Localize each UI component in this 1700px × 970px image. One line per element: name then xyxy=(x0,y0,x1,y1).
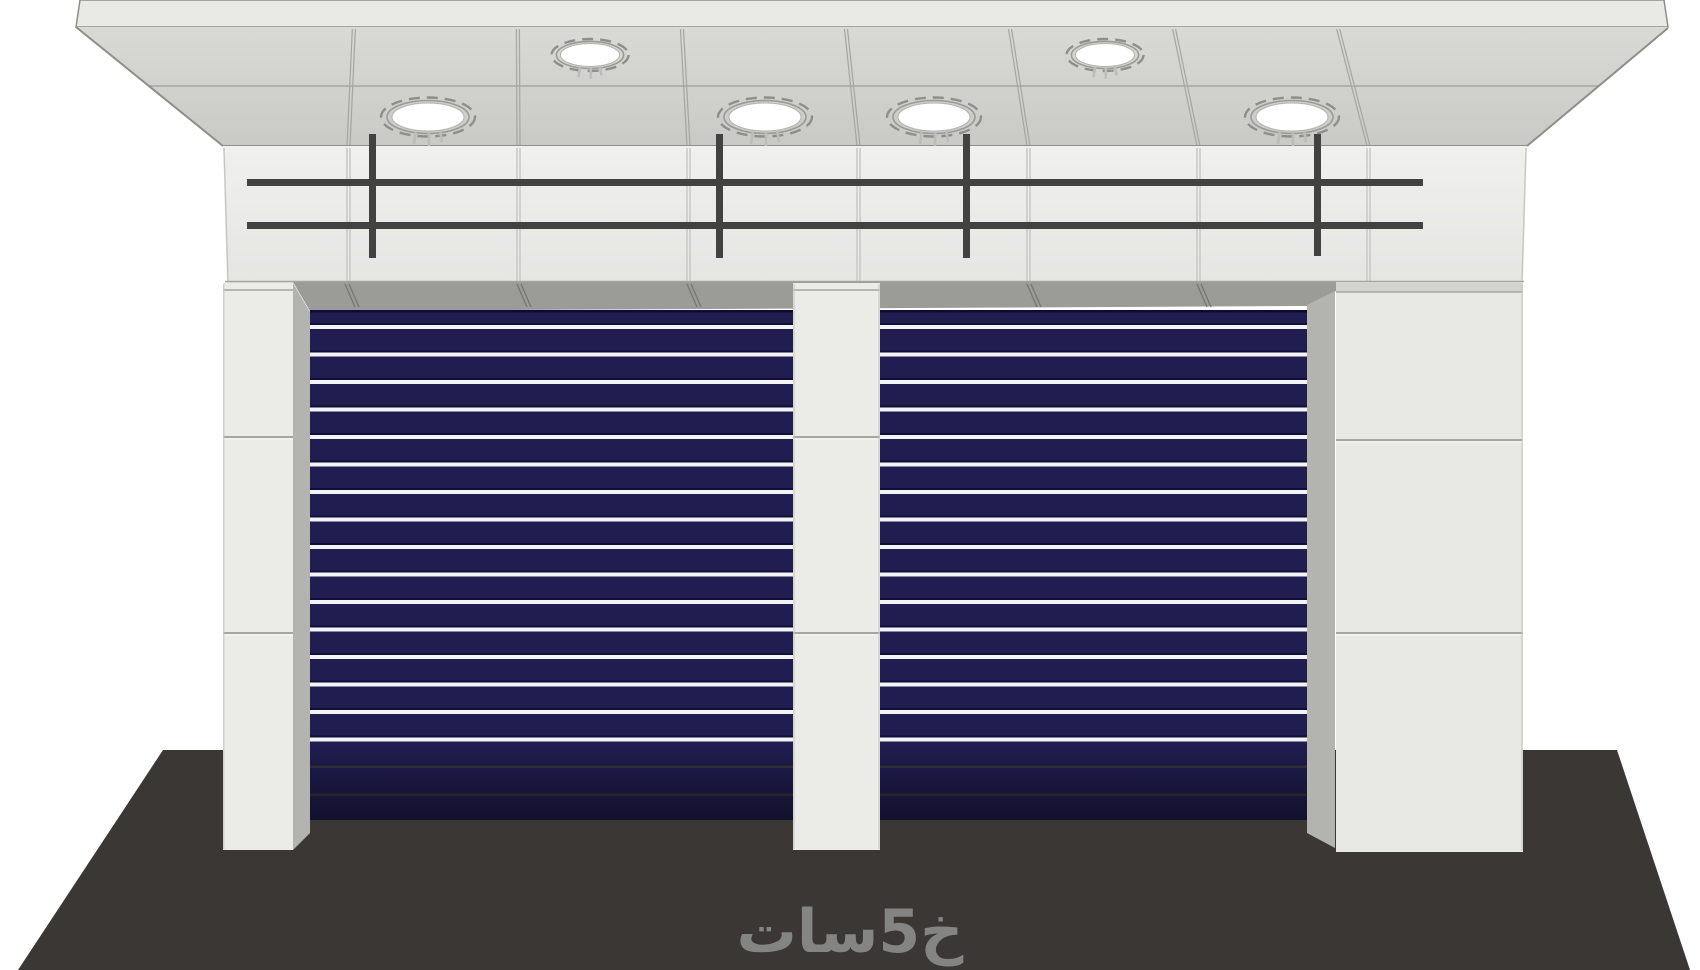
slat-gap-highlight xyxy=(310,738,793,742)
light-tick xyxy=(1094,66,1096,77)
slat-gap-highlight xyxy=(310,380,793,384)
canopy-top-strip xyxy=(76,0,1668,27)
railing-bar-bottom xyxy=(247,222,1423,229)
roller-shutter-right xyxy=(880,310,1307,820)
slat-gap-highlight xyxy=(310,655,793,659)
slat-gap-shadow xyxy=(880,626,1307,628)
slat-gap-shadow xyxy=(880,681,1307,683)
shutter-top-rail xyxy=(310,310,793,313)
light-lens xyxy=(1075,44,1134,67)
slat-gap-highlight xyxy=(880,353,1307,357)
slat-gap-shadow xyxy=(310,736,793,738)
fascia-band xyxy=(223,146,1527,283)
slat-gap-highlight xyxy=(310,353,793,357)
slat-gap-highlight xyxy=(310,463,793,467)
pillar-left-side-face xyxy=(293,283,310,850)
slat-gap-shadow xyxy=(880,433,1307,435)
slat-gap-highlight xyxy=(880,325,1307,329)
pillar-left xyxy=(223,283,310,850)
light-tick xyxy=(600,66,602,76)
shutter-bottom-shadow xyxy=(310,742,793,820)
canopy xyxy=(76,0,1668,146)
light-lens xyxy=(729,103,801,131)
slat-gap-shadow xyxy=(310,681,793,683)
slat-gap-shadow xyxy=(880,406,1307,408)
slat-gap-shadow xyxy=(310,516,793,518)
slat-gap-shadow xyxy=(310,433,793,435)
railing-post xyxy=(1314,134,1321,256)
slat-gap-shadow xyxy=(310,351,793,353)
railing-post xyxy=(369,134,376,258)
pillar-center-face xyxy=(793,283,880,850)
slat-gap-shadow xyxy=(310,406,793,408)
slat-gap-shadow xyxy=(310,708,793,710)
slat-gap-shadow xyxy=(310,653,793,655)
slat-gap-shadow xyxy=(880,653,1307,655)
slat-gap-highlight xyxy=(310,573,793,577)
fascia-panel xyxy=(223,146,1527,283)
slat-gap-highlight xyxy=(880,408,1307,412)
slat-gap-shadow xyxy=(880,351,1307,353)
slat-gap-highlight xyxy=(310,408,793,412)
light-tick xyxy=(579,66,581,77)
slat-gap-shadow xyxy=(880,598,1307,600)
slat-gap-highlight xyxy=(310,600,793,604)
pillar-center xyxy=(793,283,880,850)
slat-gap-highlight xyxy=(310,490,793,494)
roller-shutter-left xyxy=(310,310,793,820)
slat-gap-highlight xyxy=(880,683,1307,687)
slat-gap-shadow xyxy=(880,516,1307,518)
shutter-top-rail xyxy=(880,310,1307,313)
slat-gap-shadow xyxy=(880,736,1307,738)
slat-gap-shadow xyxy=(880,708,1307,710)
slat-gap-shadow xyxy=(310,543,793,545)
slat-gap-highlight xyxy=(880,573,1307,577)
slat-gap-highlight xyxy=(880,738,1307,742)
slat-gap-shadow xyxy=(880,543,1307,545)
light-lens xyxy=(392,103,464,131)
slat-gap-shadow xyxy=(310,378,793,380)
wall-cap-band xyxy=(1336,283,1523,292)
slat-gap-highlight xyxy=(880,380,1307,384)
slat-gap-shadow xyxy=(310,323,793,325)
slat-gap-highlight xyxy=(880,518,1307,522)
slat-gap-highlight xyxy=(880,435,1307,439)
slat-gap-shadow xyxy=(880,461,1307,463)
wall-right-side-face xyxy=(1307,291,1335,848)
side-wall-right xyxy=(1307,283,1523,852)
slat-gap-highlight xyxy=(880,655,1307,659)
illustration-canvas: خ5سات xyxy=(0,0,1700,970)
slat-gap-highlight xyxy=(310,710,793,714)
railing-post xyxy=(963,134,970,258)
slat-gap-highlight xyxy=(310,628,793,632)
slat-gap-highlight xyxy=(880,463,1307,467)
slat-gap-shadow xyxy=(310,598,793,600)
slat-gap-highlight xyxy=(880,490,1307,494)
slat-gap-highlight xyxy=(310,518,793,522)
railing-bar-top xyxy=(247,179,1423,186)
slat-gap-highlight xyxy=(880,628,1307,632)
slat-gap-shadow xyxy=(310,461,793,463)
light-tick xyxy=(1115,66,1117,76)
canopy-seam xyxy=(516,29,517,146)
railing-post xyxy=(716,134,723,258)
shutter-bottom-shadow xyxy=(880,742,1307,820)
slat-gap-shadow xyxy=(880,488,1307,490)
slat-gap-highlight xyxy=(310,545,793,549)
slat-gap-shadow xyxy=(310,571,793,573)
canopy-seam xyxy=(519,29,520,146)
slat-gap-shadow xyxy=(310,488,793,490)
slat-gap-highlight xyxy=(880,710,1307,714)
slat-gap-shadow xyxy=(880,378,1307,380)
slat-gap-shadow xyxy=(880,571,1307,573)
slat-gap-shadow xyxy=(310,626,793,628)
light-lens xyxy=(898,103,970,131)
pillar-left-face xyxy=(223,283,293,850)
slat-gap-highlight xyxy=(880,600,1307,604)
slat-gap-highlight xyxy=(310,683,793,687)
slat-gap-highlight xyxy=(880,545,1307,549)
light-lens xyxy=(560,44,619,67)
light-lens xyxy=(1256,103,1328,131)
slat-gap-shadow xyxy=(880,323,1307,325)
watermark-text: خ5سات xyxy=(737,897,965,967)
wall-right-face xyxy=(1336,283,1523,852)
slat-gap-highlight xyxy=(310,435,793,439)
storefront-illustration: خ5سات xyxy=(0,0,1700,970)
slat-gap-highlight xyxy=(310,325,793,329)
